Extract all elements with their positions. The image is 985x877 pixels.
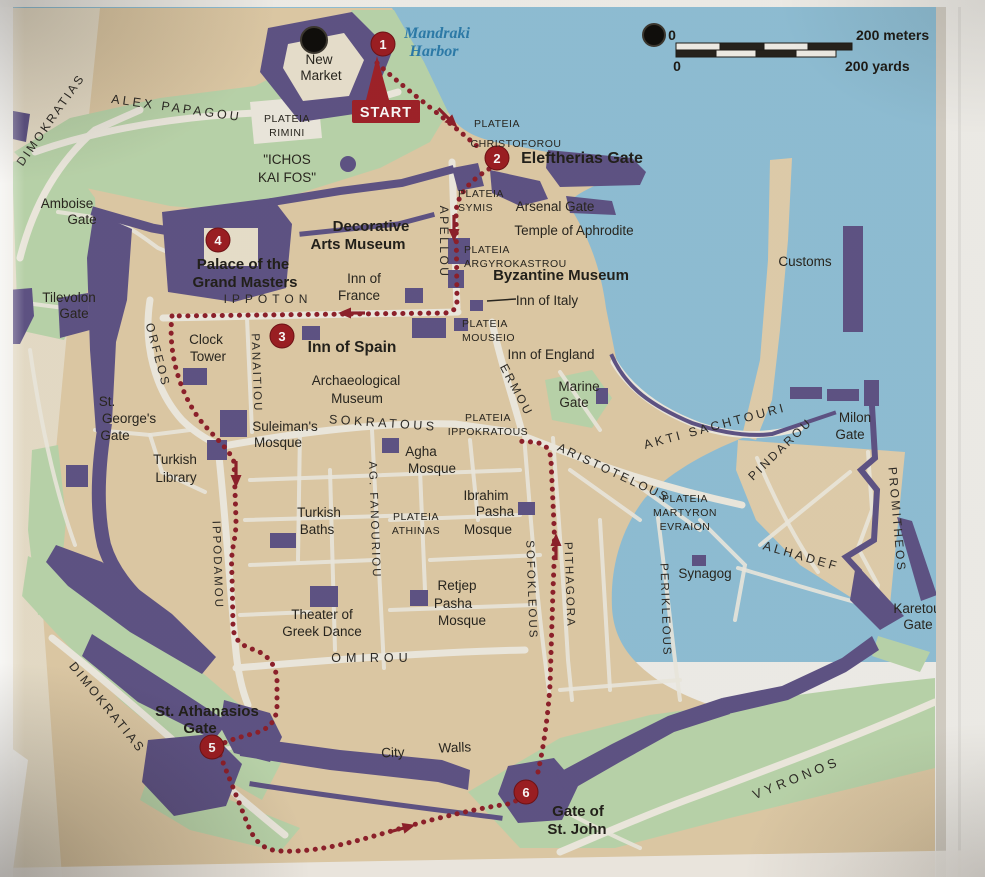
svg-text:Gate: Gate — [100, 428, 129, 443]
agha-mosque-building — [382, 438, 399, 453]
svg-text:Gate: Gate — [183, 720, 216, 737]
svg-text:Tilevolon: Tilevolon — [42, 290, 96, 305]
svg-text:RIMINI: RIMINI — [269, 127, 305, 139]
svg-text:Tower: Tower — [190, 349, 227, 364]
label-plateia-martyron: PLATEIAMARTYRONEVRAION — [653, 493, 717, 533]
svg-text:PLATEIA: PLATEIA — [264, 113, 310, 125]
route-marker-1: 1 — [371, 32, 395, 56]
svg-text:Retjep: Retjep — [437, 578, 476, 593]
svg-text:St. John: St. John — [547, 821, 606, 838]
scale-yards-bar — [676, 50, 836, 57]
svg-text:City: City — [381, 745, 405, 761]
svg-text:St. Athanasios: St. Athanasios — [155, 703, 259, 720]
svg-text:MOUSEIO: MOUSEIO — [462, 332, 515, 344]
svg-text:Clock: Clock — [189, 332, 223, 347]
svg-text:Theater of: Theater of — [291, 607, 353, 622]
svg-text:PLATEIA: PLATEIA — [474, 118, 520, 130]
route-marker-6: 6 — [514, 780, 538, 804]
svg-text:Amboise: Amboise — [41, 196, 94, 211]
svg-text:5: 5 — [208, 740, 215, 755]
theater-building — [310, 586, 338, 607]
label-inn-of-italy: Inn of Italy — [516, 293, 579, 308]
svg-text:3: 3 — [278, 329, 285, 344]
svg-text:Arts Museum: Arts Museum — [310, 236, 405, 253]
svg-text:2: 2 — [493, 151, 500, 166]
svg-text:New: New — [305, 52, 332, 67]
label-omirou: OMIROU — [331, 651, 412, 665]
label-customs: Customs — [778, 254, 832, 269]
west-tower — [66, 465, 88, 487]
inn-of-spain-building — [302, 326, 320, 340]
svg-text:MARTYRON: MARTYRON — [653, 507, 717, 519]
svg-text:Pasha: Pasha — [476, 504, 515, 519]
svg-text:SYMIS: SYMIS — [458, 202, 493, 214]
svg-text:Mandraki: Mandraki — [403, 25, 470, 42]
svg-text:Mosque: Mosque — [254, 435, 302, 450]
page-crease — [936, 0, 946, 877]
label-gate-of-st-john: Gate ofSt. John — [547, 803, 606, 838]
svg-text:IPPOKRATOUS: IPPOKRATOUS — [448, 426, 528, 438]
inn-of-italy-building — [470, 300, 483, 311]
svg-text:Milon: Milon — [839, 410, 871, 425]
svg-text:Gate of: Gate of — [552, 803, 605, 820]
svg-text:Ibrahim: Ibrahim — [463, 488, 508, 503]
label-arsenal-gate: Arsenal Gate — [516, 199, 595, 214]
label-apellou: APELLOU — [437, 206, 451, 279]
svg-text:Walls: Walls — [438, 739, 471, 755]
svg-text:Harbor: Harbor — [409, 43, 460, 60]
svg-text:4: 4 — [214, 233, 222, 248]
svg-text:George's: George's — [102, 411, 157, 426]
svg-text:Pasha: Pasha — [434, 596, 473, 611]
svg-text:Gate: Gate — [67, 212, 96, 227]
scale-zero-bottom: 0 — [673, 58, 681, 74]
svg-text:KAI FOS": KAI FOS" — [258, 170, 316, 185]
route-marker-3: 3 — [270, 324, 294, 348]
svg-text:Decorative: Decorative — [333, 218, 410, 235]
customs-pier — [843, 226, 863, 332]
svg-text:Mosque: Mosque — [408, 461, 456, 476]
svg-text:Archaeological: Archaeological — [312, 373, 401, 388]
paper-top-strip — [0, 0, 985, 7]
ne-wall-a — [790, 387, 822, 399]
label-inn-of-england: Inn of England — [507, 347, 594, 362]
svg-text:Suleiman's: Suleiman's — [252, 419, 318, 434]
route-marker-4: 4 — [206, 228, 230, 252]
svg-text:Gate: Gate — [59, 306, 88, 321]
scale-yards-label: 200 yards — [845, 58, 910, 74]
punch-hole-left — [301, 27, 327, 53]
svg-text:Marine: Marine — [558, 379, 599, 394]
svg-text:Market: Market — [300, 68, 342, 83]
label-eleftherias-gate: Eleftherias Gate — [521, 150, 643, 167]
svg-text:Turkish: Turkish — [153, 452, 197, 467]
svg-text:Inn of: Inn of — [347, 271, 381, 286]
label-temple-aphrodite: Temple of Aphrodite — [514, 223, 633, 238]
svg-text:EVRAION: EVRAION — [660, 521, 711, 533]
label-synagog: Synagog — [678, 566, 731, 581]
paper-left-strip — [0, 0, 13, 877]
label-palace-grand-masters: Palace of theGrand Masters — [192, 256, 297, 291]
label-byzantine-museum: Byzantine Museum — [493, 267, 629, 284]
turkish-baths-building — [270, 533, 296, 548]
svg-text:Gate: Gate — [903, 617, 932, 632]
svg-text:Gate: Gate — [835, 427, 864, 442]
round-tower — [340, 156, 356, 172]
rhodes-walking-tour-map: START 1 2 3 4 5 6 0 200 meters 0 200 yar… — [0, 0, 985, 877]
svg-text:PLATEIA: PLATEIA — [393, 511, 439, 523]
svg-text:PLATEIA: PLATEIA — [458, 188, 504, 200]
svg-text:PLATEIA: PLATEIA — [662, 493, 708, 505]
svg-text:Gate: Gate — [559, 395, 588, 410]
map-photo-page: START 1 2 3 4 5 6 0 200 meters 0 200 yar… — [0, 0, 985, 877]
ne-wall-c — [864, 380, 879, 406]
svg-text:ATHINAS: ATHINAS — [392, 525, 440, 537]
svg-text:Greek Dance: Greek Dance — [282, 624, 362, 639]
svg-text:Turkish: Turkish — [297, 505, 341, 520]
label-ippoton: IPPOTON — [224, 292, 313, 306]
svg-text:"ICHOS: "ICHOS — [263, 152, 311, 167]
svg-text:Palace of the: Palace of the — [197, 256, 290, 273]
scale-meters-bar — [676, 43, 852, 50]
svg-text:Grand Masters: Grand Masters — [192, 274, 297, 291]
synagog-building — [692, 555, 706, 566]
clock-tower-building — [183, 368, 207, 385]
svg-text:PLATEIA: PLATEIA — [462, 318, 508, 330]
turkish-library-building — [207, 440, 227, 460]
retjep-pasha-building — [410, 590, 428, 606]
svg-text:Mosque: Mosque — [464, 522, 512, 537]
svg-text:Agha: Agha — [405, 444, 437, 459]
svg-text:St.: St. — [99, 394, 116, 409]
svg-text:Mosque: Mosque — [438, 613, 486, 628]
page-crease-line — [958, 0, 961, 877]
scale-meters-label: 200 meters — [856, 27, 929, 43]
svg-text:PLATEIA: PLATEIA — [465, 412, 511, 424]
scale-zero-top: 0 — [668, 27, 676, 43]
svg-text:Baths: Baths — [300, 522, 335, 537]
start-label: START — [360, 105, 412, 121]
svg-text:PLATEIA: PLATEIA — [464, 244, 510, 256]
svg-text:CHRISTOFOROU: CHRISTOFOROU — [471, 138, 562, 150]
label-inn-of-spain: Inn of Spain — [308, 339, 397, 356]
route-marker-5: 5 — [200, 735, 224, 759]
svg-text:France: France — [338, 288, 380, 303]
ibrahim-pasha-building — [518, 502, 535, 515]
svg-text:6: 6 — [522, 785, 529, 800]
svg-text:Museum: Museum — [331, 391, 383, 406]
svg-text:Karetou: Karetou — [893, 601, 940, 616]
svg-text:Library: Library — [155, 470, 197, 485]
inn-of-france-building — [405, 288, 423, 303]
punch-hole-right — [643, 24, 665, 46]
suleimans-mosque-building — [220, 410, 247, 437]
archaeological-museum-building — [412, 318, 446, 338]
ne-wall-b — [827, 389, 859, 401]
svg-text:1: 1 — [379, 37, 386, 52]
